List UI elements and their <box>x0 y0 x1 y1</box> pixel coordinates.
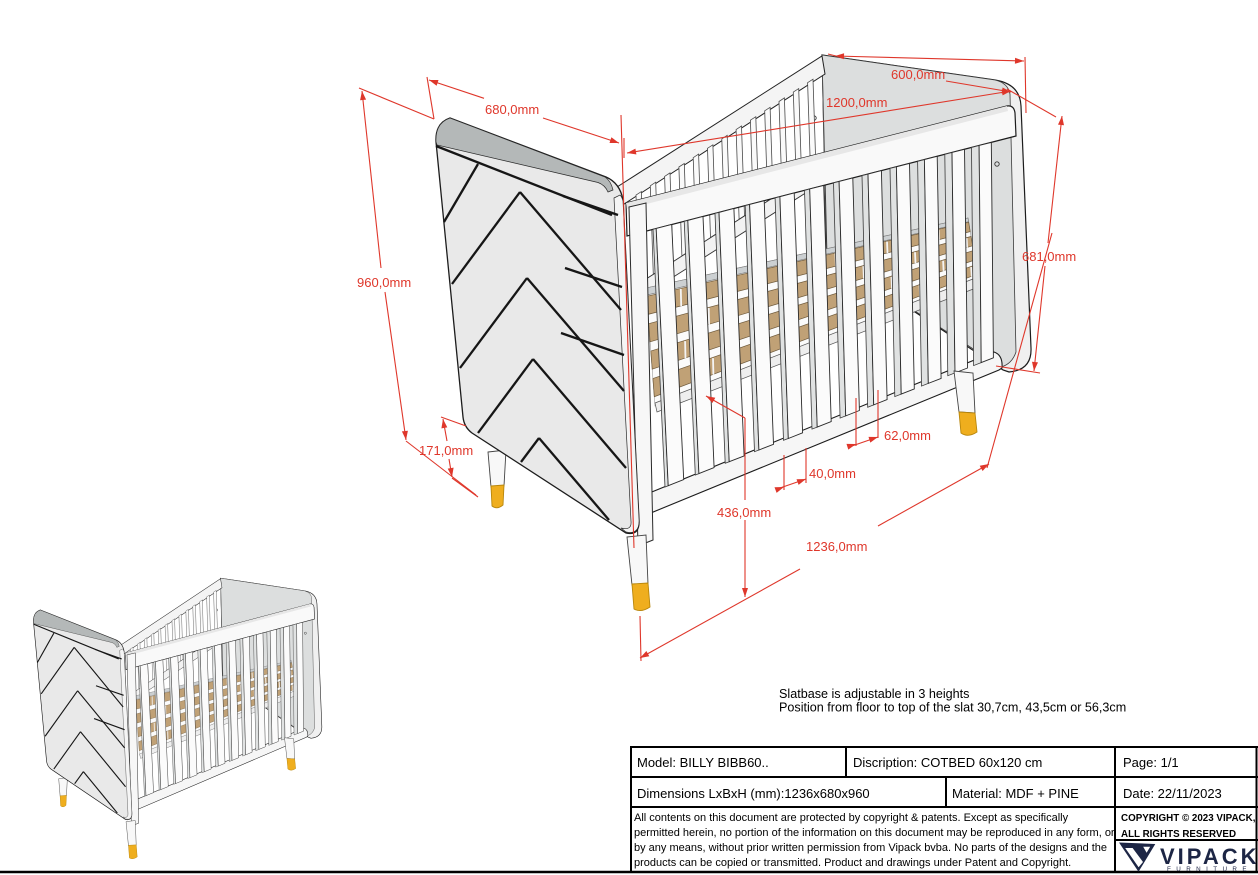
svg-text:Page: 1/1: Page: 1/1 <box>1123 755 1179 770</box>
svg-text:FURNITURE: FURNITURE <box>1167 866 1252 873</box>
svg-text:Slatbase is adjustable in 3 he: Slatbase is adjustable in 3 heights <box>779 687 969 701</box>
svg-text:1200,0mm: 1200,0mm <box>826 95 887 110</box>
svg-text:600,0mm: 600,0mm <box>891 67 945 82</box>
svg-text:436,0mm: 436,0mm <box>717 505 771 520</box>
svg-text:products can be copied or tran: products can be copied or transmitted. P… <box>634 857 1071 869</box>
svg-text:permitted herein, no portion o: permitted herein, no portion of the info… <box>634 827 1115 839</box>
svg-text:40,0mm: 40,0mm <box>809 466 856 481</box>
svg-text:Discription: COTBED 60x120 cm: Discription: COTBED 60x120 cm <box>853 755 1042 770</box>
svg-text:Date: 22/11/2023: Date: 22/11/2023 <box>1123 786 1222 801</box>
svg-text:Position from floor to top of: Position from floor to top of the slat 3… <box>779 701 1126 715</box>
svg-text:960,0mm: 960,0mm <box>357 275 411 290</box>
svg-text:62,0mm: 62,0mm <box>884 428 931 443</box>
svg-text:COPYRIGHT © 2023 VIPACK,: COPYRIGHT © 2023 VIPACK, <box>1121 813 1256 824</box>
svg-text:680,0mm: 680,0mm <box>485 102 539 117</box>
svg-text:ALL RIGHTS RESERVED: ALL RIGHTS RESERVED <box>1121 829 1236 840</box>
svg-text:1236,0mm: 1236,0mm <box>806 539 867 554</box>
svg-text:171,0mm: 171,0mm <box>419 443 473 458</box>
svg-text:Material: MDF + PINE: Material: MDF + PINE <box>952 786 1079 801</box>
svg-text:681,0mm: 681,0mm <box>1022 249 1076 264</box>
svg-text:Dimensions LxBxH (mm):1236x680: Dimensions LxBxH (mm):1236x680x960 <box>637 786 870 801</box>
svg-text:All contents on this document: All contents on this document are protec… <box>634 812 1069 824</box>
svg-text:by any means, without prior wr: by any means, without prior written perm… <box>634 842 1107 854</box>
svg-text:Model: BILLY BIBB60..: Model: BILLY BIBB60.. <box>637 755 769 770</box>
